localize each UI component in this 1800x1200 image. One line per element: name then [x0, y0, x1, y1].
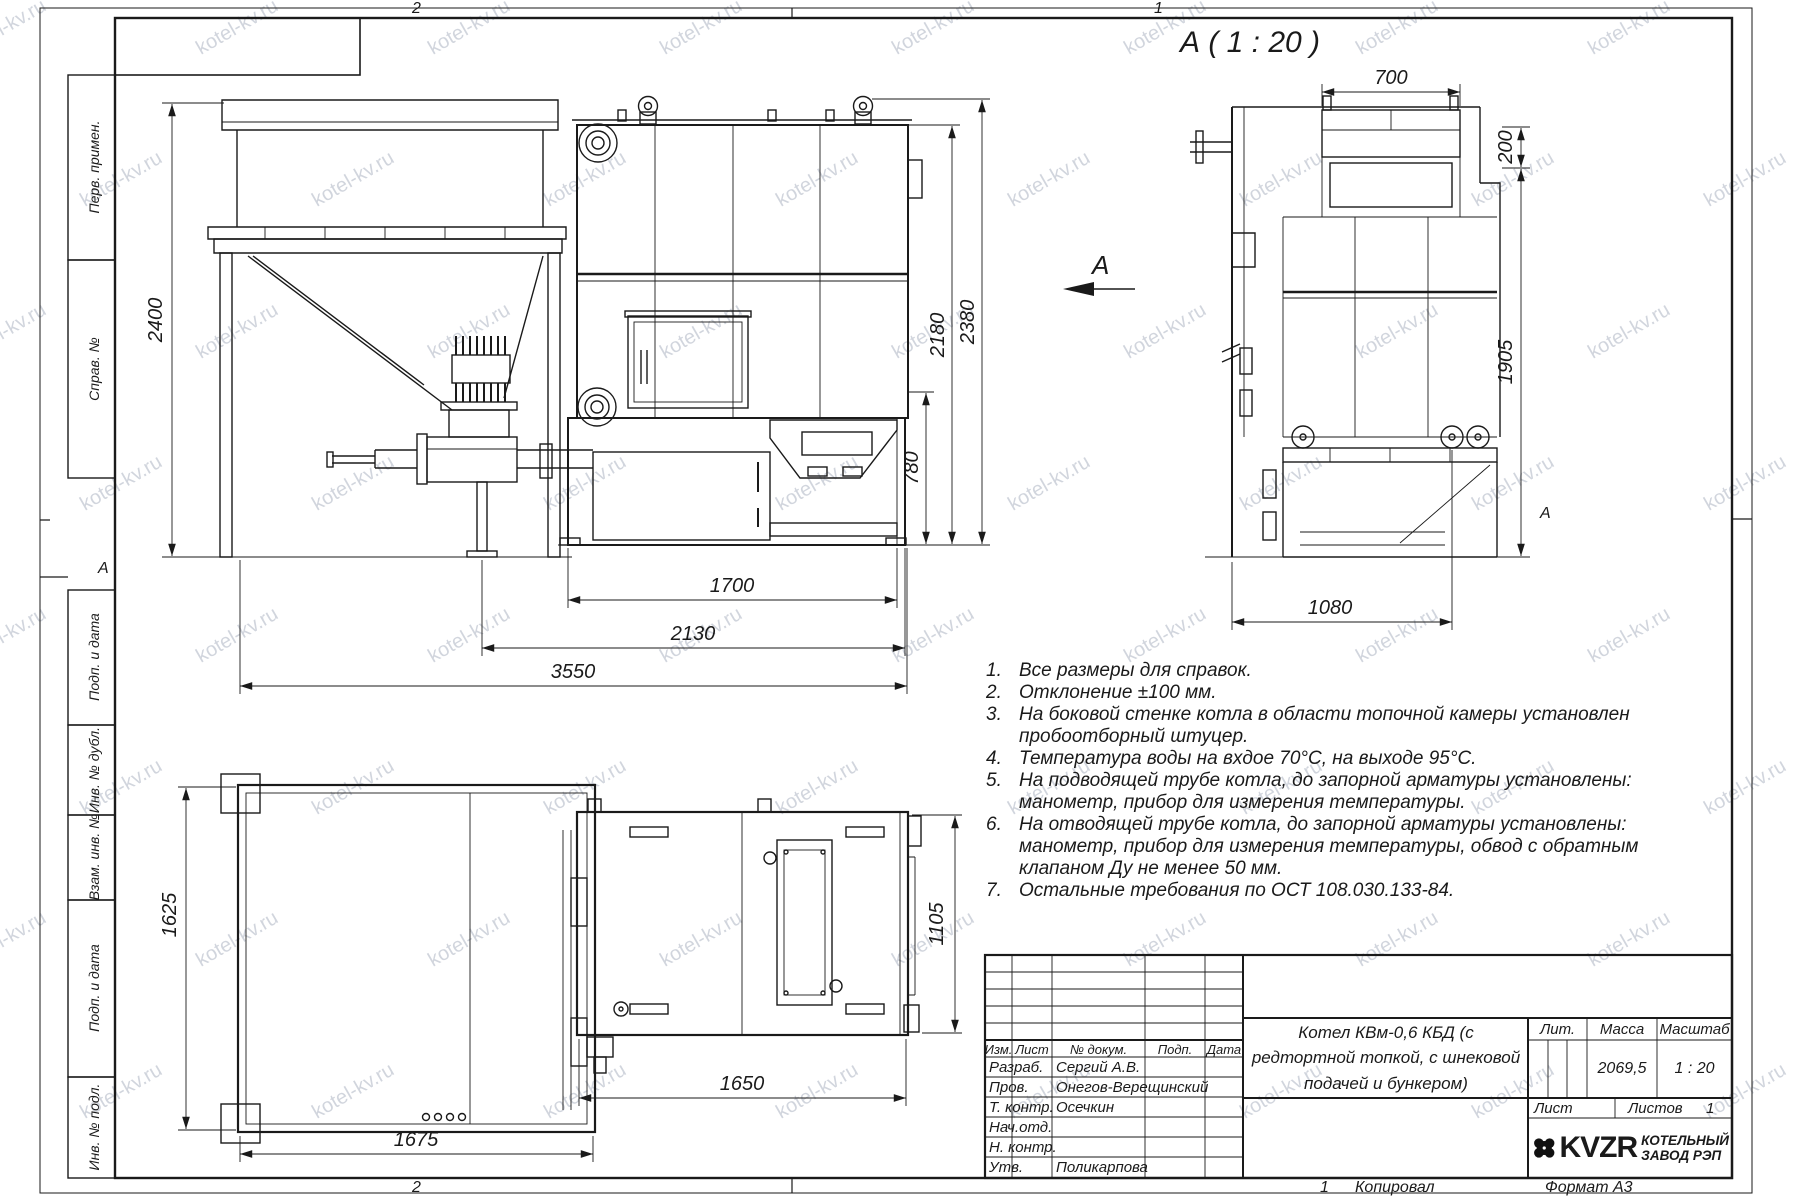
note-line: пробоотборный штуцер.	[986, 726, 1686, 748]
margin-stamp-labels: Перв. примен. Справ. № Подп. и дата Инв.…	[86, 120, 102, 1170]
company-logo-text: KVZR	[1559, 1131, 1637, 1165]
tb-row-value: Поликарпова	[1056, 1159, 1148, 1176]
dim-1675: 1675	[394, 1129, 439, 1151]
note-text: Остальные требования по ОСТ 108.030.133-…	[1019, 880, 1454, 902]
note-text: Все размеры для справок.	[1019, 660, 1252, 682]
tb-row-label: Разраб.	[989, 1059, 1043, 1076]
boiler-front-view	[517, 97, 922, 546]
tb-row-label: Пров.	[989, 1079, 1029, 1096]
tb-header-data: Дата	[1205, 1041, 1243, 1057]
bunker-front-view	[196, 100, 572, 557]
tb-row-value: Осечкин	[1056, 1099, 1114, 1116]
dim-1625: 1625	[159, 892, 181, 937]
note-number	[986, 858, 1019, 880]
dim-1080: 1080	[1308, 597, 1353, 619]
sheet-frame	[40, 8, 1752, 1193]
note-line: 2.Отклонение ±100 мм.	[986, 682, 1686, 704]
copied-by-label: Копировал	[1355, 1179, 1435, 1197]
dim-3550: 3550	[551, 661, 596, 683]
technical-notes: 1.Все размеры для справок. 2.Отклонение …	[986, 660, 1686, 902]
note-number	[986, 726, 1019, 748]
view-direction-arrow	[1063, 282, 1135, 296]
tb-mass-value: 2069,5	[1587, 1040, 1657, 1098]
section-view-title: А ( 1 : 20 )	[1165, 26, 1335, 60]
margin-label: Подп. и дата	[86, 944, 102, 1032]
margin-label: Инв. № дубл.	[86, 727, 102, 813]
note-text: Отклонение ±100 мм.	[1019, 682, 1217, 704]
dim-780: 780	[901, 451, 923, 484]
note-number: 5.	[986, 770, 1019, 792]
note-number: 7.	[986, 880, 1019, 902]
dim-1700: 1700	[710, 575, 755, 597]
note-line: 4.Температура воды на вхдое 70°С, на вых…	[986, 748, 1686, 770]
tb-header-podp: Подп.	[1145, 1041, 1205, 1057]
margin-label: Справ. №	[86, 337, 102, 401]
tb-sheets-value: 1	[1706, 1100, 1714, 1117]
tb-lit-label: Лит.	[1528, 1020, 1587, 1038]
fold-marker-left: А	[98, 560, 109, 578]
zone-number-top-left: 2	[412, 0, 421, 18]
note-line: 1.Все размеры для справок.	[986, 660, 1686, 682]
company-name: КОТЕЛЬНЫЙ ЗАВОД РЭП	[1641, 1133, 1729, 1163]
zone-number-bottom-left: 2	[412, 1179, 421, 1197]
zone-number-top-right: 1	[1154, 0, 1163, 18]
dim-700: 700	[1374, 67, 1407, 89]
tb-header-list: Лист	[1012, 1041, 1052, 1057]
bunker-plan-view	[221, 774, 595, 1143]
note-text: Температура воды на вхдое 70°С, на выход…	[1019, 748, 1476, 770]
note-text: пробоотборный штуцер.	[1019, 726, 1248, 748]
tb-header-izm: Изм.	[985, 1041, 1012, 1057]
view-arrow-label: А	[1092, 250, 1109, 281]
note-text: На боковой стенке котла в области топочн…	[1019, 704, 1630, 726]
company-name-line1: КОТЕЛЬНЫЙ	[1641, 1133, 1729, 1148]
dim-2180: 2180	[927, 313, 949, 359]
note-text: На отводящей трубе котла, до запорной ар…	[1019, 814, 1627, 836]
note-line: манометр, прибор для измерения температу…	[986, 836, 1686, 858]
tb-row-label: Н. контр.	[989, 1139, 1057, 1156]
format-label: Формат А3	[1545, 1179, 1633, 1197]
note-line: 6.На отводящей трубе котла, до запорной …	[986, 814, 1686, 836]
fold-marker-right: А	[1540, 505, 1551, 523]
company-block: KVZR КОТЕЛЬНЫЙ ЗАВОД РЭП	[1533, 1122, 1729, 1174]
note-text: клапаном Ду не менее 50 мм.	[1019, 858, 1282, 880]
note-number: 2.	[986, 682, 1019, 704]
company-name-line2: ЗАВОД РЭП	[1641, 1148, 1721, 1163]
dimension-lines	[162, 84, 1530, 1162]
bottom-sheet-number: 1	[1320, 1179, 1329, 1197]
margin-label: Подп. и дата	[86, 613, 102, 701]
note-number: 1.	[986, 660, 1019, 682]
note-number	[986, 836, 1019, 858]
note-line: 7.Остальные требования по ОСТ 108.030.13…	[986, 880, 1686, 902]
tb-row-value: Сергий А.В.	[1056, 1059, 1140, 1076]
tb-scale-label: Масштаб	[1657, 1020, 1732, 1038]
note-number: 4.	[986, 748, 1019, 770]
tb-row-label: Утв.	[989, 1159, 1023, 1176]
note-text: манометр, прибор для измерения температу…	[1019, 836, 1638, 858]
tb-row-label: Нач.отд.	[989, 1119, 1052, 1136]
dim-2130: 2130	[670, 623, 716, 645]
note-text: манометр, прибор для измерения температу…	[1019, 792, 1466, 814]
tb-header-doc: № докум.	[1052, 1041, 1145, 1057]
dim-1650: 1650	[720, 1073, 765, 1095]
tb-sheets-label: Листов	[1628, 1100, 1683, 1117]
tb-mass-label: Масса	[1587, 1020, 1657, 1038]
boiler-plan-view	[577, 799, 921, 1073]
dim-2400: 2400	[145, 298, 167, 344]
dim-1905: 1905	[1495, 339, 1517, 384]
section-view-a	[1190, 96, 1510, 557]
company-logo-icon	[1533, 1129, 1555, 1167]
note-number: 3.	[986, 704, 1019, 726]
note-line: манометр, прибор для измерения температу…	[986, 792, 1686, 814]
note-line: клапаном Ду не менее 50 мм.	[986, 858, 1686, 880]
document-title: Котел КВм-0,6 КБД (с редтортной топкой, …	[1247, 1020, 1525, 1096]
dim-1105: 1105	[926, 902, 948, 946]
note-text: На подводящей трубе котла, до запорной а…	[1019, 770, 1632, 792]
tb-row-label: Т. контр.	[989, 1099, 1054, 1116]
note-line: 5.На подводящей трубе котла, до запорной…	[986, 770, 1686, 792]
dim-200: 200	[1495, 130, 1517, 164]
note-number: 6.	[986, 814, 1019, 836]
tb-row-value: Онегов-Верещинский	[1056, 1079, 1208, 1096]
margin-label: Взам. инв. №	[86, 814, 102, 901]
tb-scale-value: 1 : 20	[1657, 1040, 1732, 1098]
drawing-sheet: kotel-kv.rukotel-kv.rukotel-kv.rukotel-k…	[0, 0, 1800, 1200]
tb-sheet-label: Лист	[1534, 1100, 1573, 1117]
margin-label: Перв. примен.	[86, 120, 102, 213]
dim-2380: 2380	[957, 300, 979, 346]
note-line: 3.На боковой стенке котла в области топо…	[986, 704, 1686, 726]
margin-label: Инв. № подл.	[86, 1084, 102, 1171]
note-number	[986, 792, 1019, 814]
